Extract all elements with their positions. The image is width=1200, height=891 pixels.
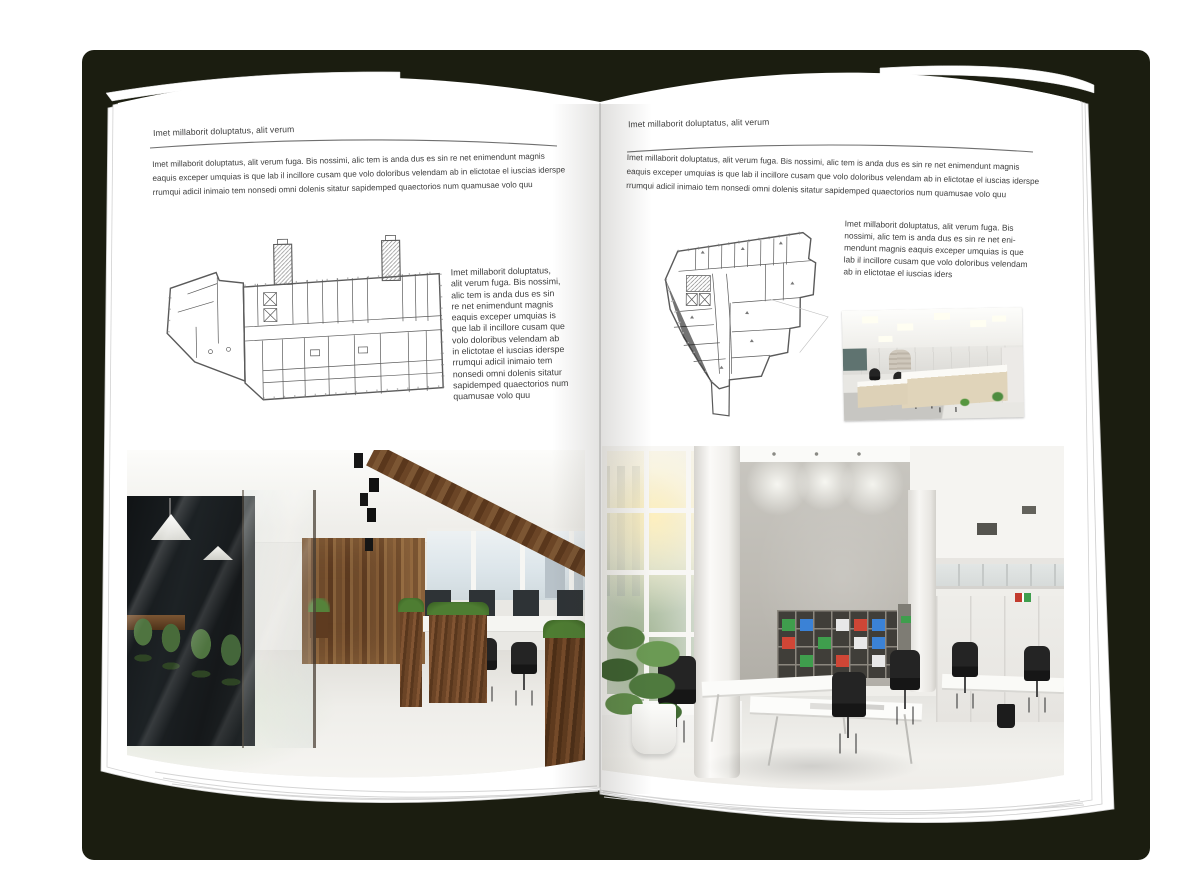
left-page-caption: Imet millaborit doluptatus, alit verum f… (451, 265, 584, 403)
right-page-caption: Imet millaborit doluptatus, alit verum f… (843, 217, 1045, 282)
loft-safety-signs (1015, 593, 1031, 602)
office1-planter-3 (545, 635, 585, 770)
cubicles-stair-hint (889, 349, 911, 369)
loft-chair-3 (890, 650, 920, 722)
office1-planter-1 (400, 610, 422, 707)
loft-chair-5 (1024, 646, 1050, 708)
office1-glass-reflections (127, 490, 311, 748)
loft-exit-sign (901, 616, 911, 623)
cubicles-plant-2 (960, 398, 970, 406)
office1-planter-1-grass (398, 598, 424, 612)
photo-office-bright-loft (602, 446, 1064, 816)
cubicles-desk-run-front (857, 378, 907, 408)
photo-office-cubicles (842, 307, 1024, 421)
loft-column-left (694, 446, 740, 778)
loft-chair-2 (832, 672, 866, 752)
office1-planter-2-grass (427, 602, 489, 615)
loft-desk-shadow (702, 746, 922, 786)
cubicles-ceiling (842, 307, 1023, 351)
office1-planter-3-grass (543, 620, 585, 638)
cubicles-media-screen (843, 348, 867, 370)
office1-track-spotlights (307, 450, 437, 560)
loft-ceiling-strip (740, 446, 910, 462)
floorplan-right (649, 223, 837, 421)
office1-planter-2 (429, 613, 487, 703)
cubicles-plant-1 (992, 392, 1004, 402)
loft-waste-bin (997, 704, 1015, 728)
photo-office-dark-wood (127, 450, 585, 795)
loft-bookshelf (777, 610, 897, 678)
magazine-mockup-stage: Imet millaborit doluptatus, alit verum I… (0, 0, 1200, 891)
loft-chair-4 (952, 642, 978, 704)
floorplan-left (156, 227, 451, 416)
office1-desk-chair-3 (511, 642, 537, 700)
loft-plant-pot (632, 704, 676, 754)
